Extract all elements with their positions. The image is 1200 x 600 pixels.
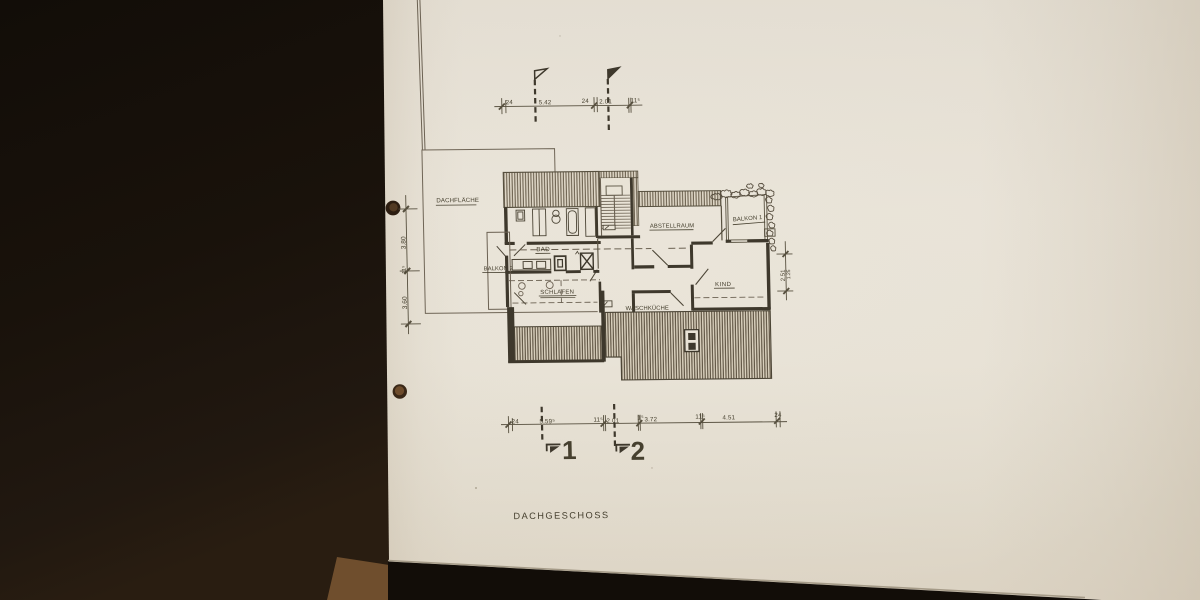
- svg-text:DACHFLÄCHE: DACHFLÄCHE: [436, 197, 479, 204]
- svg-text:3.72: 3.72: [644, 416, 657, 423]
- svg-text:5.42: 5.42: [539, 99, 552, 106]
- svg-text:4.51: 4.51: [722, 414, 735, 421]
- svg-text:BALKON 2: BALKON 2: [484, 266, 513, 272]
- svg-text:2.01: 2.01: [606, 418, 619, 425]
- svg-text:3.80: 3.80: [400, 236, 407, 249]
- svg-text:KIND: KIND: [715, 282, 732, 288]
- svg-text:SCHLAFEN: SCHLAFEN: [540, 290, 574, 296]
- svg-text:11⁵: 11⁵: [593, 417, 603, 424]
- svg-text:1.25: 1.25: [786, 269, 792, 279]
- svg-text:BAD: BAD: [536, 246, 550, 253]
- svg-text:2: 2: [630, 436, 645, 466]
- svg-text:WASCHKÜCHE: WASCHKÜCHE: [626, 305, 669, 312]
- svg-text:1: 1: [562, 435, 577, 465]
- svg-text:24: 24: [506, 99, 514, 106]
- svg-text:11⁵: 11⁵: [631, 97, 641, 104]
- svg-text:11⁵: 11⁵: [401, 266, 408, 274]
- svg-text:2.01: 2.01: [599, 98, 612, 105]
- svg-text:24: 24: [774, 412, 782, 419]
- svg-text:1⁵: 1⁵: [637, 415, 644, 422]
- svg-text:ABSTELLRAUM: ABSTELLRAUM: [650, 223, 694, 229]
- svg-text:3.60: 3.60: [402, 296, 409, 309]
- svg-text:24: 24: [582, 98, 590, 105]
- svg-text:DACHGESCHOSS: DACHGESCHOSS: [513, 510, 609, 521]
- svg-text:11⁵: 11⁵: [695, 413, 705, 420]
- svg-text:24: 24: [512, 418, 520, 425]
